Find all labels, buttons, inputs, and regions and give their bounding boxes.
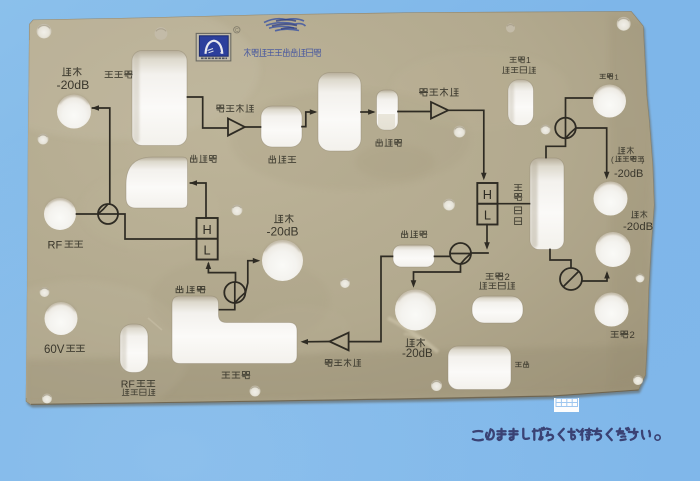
svg-text:1: 1 <box>615 72 619 81</box>
svg-text:H: H <box>202 222 211 237</box>
svg-text:60V: 60V <box>44 344 65 356</box>
svg-text:L: L <box>484 207 491 222</box>
svg-text:RF: RF <box>121 379 135 391</box>
svg-text:H: H <box>483 187 492 202</box>
svg-text:): ) <box>642 156 645 165</box>
svg-text:2: 2 <box>630 330 635 341</box>
svg-text:-20dB: -20dB <box>267 224 299 238</box>
svg-text:L: L <box>204 242 211 257</box>
svg-text:-20dB: -20dB <box>614 168 643 180</box>
svg-text:2: 2 <box>505 272 510 283</box>
svg-text:(: ( <box>611 156 614 165</box>
svg-text:RF: RF <box>48 240 63 252</box>
svg-text:-20dB: -20dB <box>57 78 90 92</box>
svg-text:1: 1 <box>526 55 531 65</box>
svg-text:-20dB: -20dB <box>623 221 653 233</box>
svg-text:C: C <box>235 28 239 34</box>
svg-text:-20dB: -20dB <box>402 348 433 360</box>
